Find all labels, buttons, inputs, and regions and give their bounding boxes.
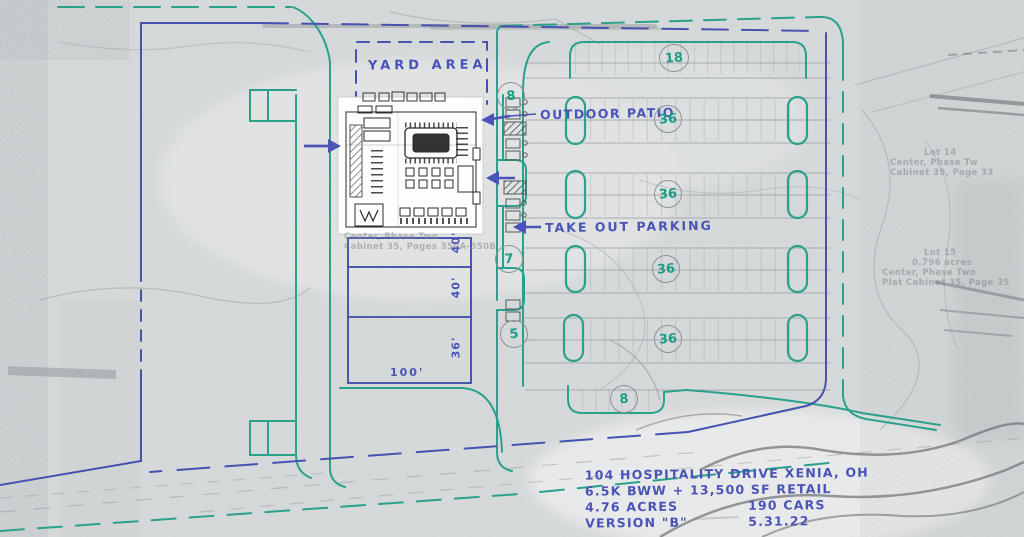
bay2-width-label: 40' xyxy=(449,277,462,299)
plat-text-line: Cabinet 35, Page 33 xyxy=(890,168,994,178)
program-text: 6.5K BWW + 13,500 SF RETAIL xyxy=(585,481,832,499)
plat-text-line: Center, Phase Two xyxy=(344,232,496,242)
plat-text-line: Lot 15 xyxy=(882,248,1010,258)
yard-area-label: YARD AREA xyxy=(368,57,487,73)
take-out-parking-label: TAKE OUT PARKING xyxy=(545,218,713,235)
version-text: VERSION "B" xyxy=(585,515,688,531)
plat-text-line: Lot 14 xyxy=(890,148,994,158)
city-text: XENIA, OH xyxy=(785,465,869,482)
bay-depth-label: 100' xyxy=(390,366,424,379)
plat-text-lot14: Lot 14 Center, Phase Tw Cabinet 35, Page… xyxy=(890,148,994,178)
address-text: 104 HOSPITALITY DRIVE xyxy=(585,466,779,483)
date-text: 5.31.22 xyxy=(748,513,810,530)
plat-text-line: Center, Phase Two xyxy=(882,268,1010,278)
plat-text-line: Plat Cabinet 35, Page 35 xyxy=(882,278,1010,288)
bay3-width-label: 36' xyxy=(449,337,462,359)
acreage-text: 4.76 ACRES xyxy=(585,499,678,515)
plat-text-line: Center, Phase Tw xyxy=(890,158,994,168)
site-plan-scan: YARD AREA OUTDOOR PATIO TAKE OUT PARKING… xyxy=(0,0,1024,537)
plat-text-line: 0.796 acres xyxy=(882,258,1010,268)
plat-text-line: Cabinet 35, Pages 350A-350B xyxy=(344,242,496,252)
title-line-version: VERSION "B" 5.31.22 xyxy=(585,512,897,531)
title-block: 104 HOSPITALITY DRIVE XENIA, OH 6.5K BWW… xyxy=(585,464,898,531)
building-floor-plan xyxy=(338,92,483,234)
plat-text-under-building: Center, Phase Two Cabinet 35, Pages 350A… xyxy=(344,232,496,252)
plat-text-lot15: Lot 15 0.796 acres Center, Phase Two Pla… xyxy=(882,248,1010,288)
car-count-text: 190 CARS xyxy=(748,497,826,514)
